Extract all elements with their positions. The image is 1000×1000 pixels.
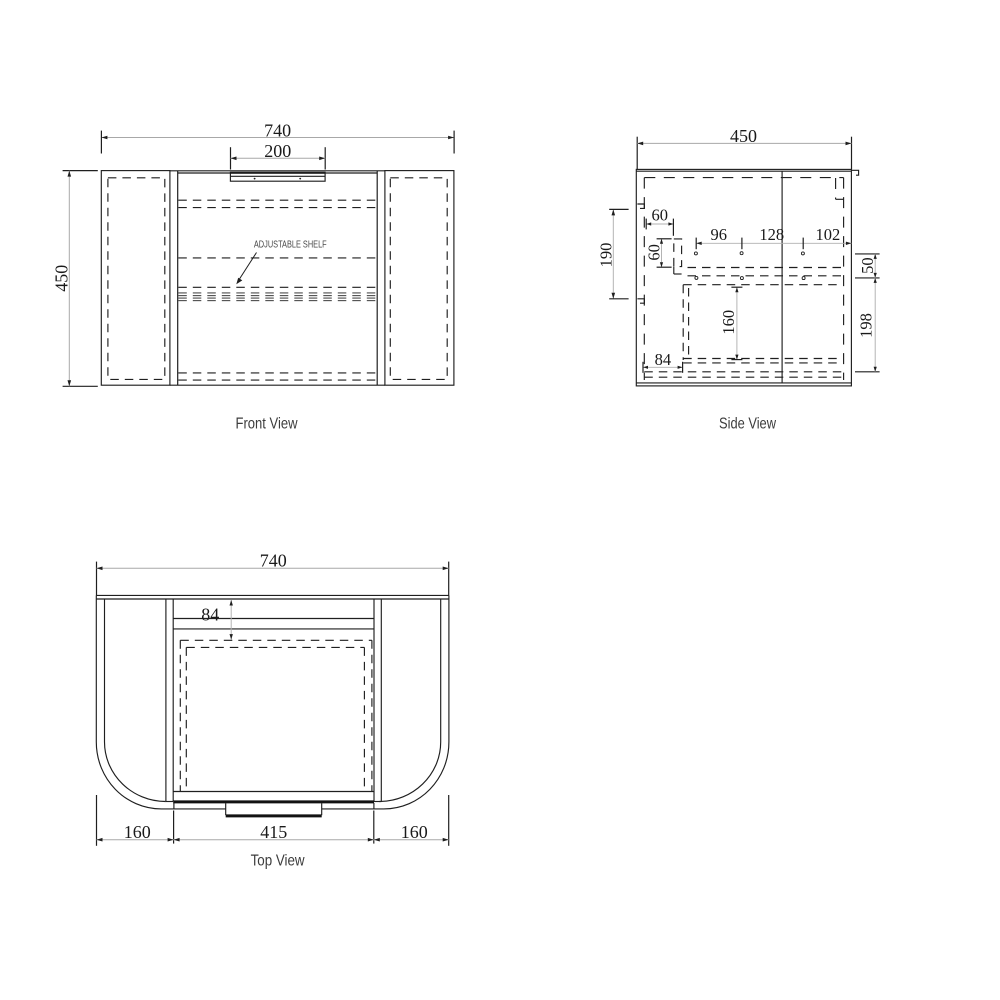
svg-text:450: 450: [730, 126, 757, 146]
svg-text:ADJUSTABLE SHELF: ADJUSTABLE SHELF: [254, 240, 327, 251]
svg-text:415: 415: [260, 822, 287, 842]
svg-text:740: 740: [264, 121, 291, 141]
svg-text:128: 128: [759, 225, 784, 244]
svg-text:Side View: Side View: [719, 415, 776, 432]
svg-text:Front View: Front View: [236, 415, 298, 432]
svg-text:96: 96: [711, 225, 728, 244]
svg-text:84: 84: [655, 350, 672, 369]
svg-text:Top View: Top View: [251, 852, 305, 869]
svg-text:200: 200: [264, 141, 291, 161]
svg-text:60: 60: [652, 205, 669, 224]
svg-text:450: 450: [52, 265, 72, 292]
svg-text:740: 740: [260, 550, 287, 570]
svg-text:160: 160: [719, 310, 738, 335]
svg-text:160: 160: [124, 822, 151, 842]
svg-text:102: 102: [816, 225, 841, 244]
svg-text:160: 160: [401, 822, 428, 842]
svg-text:60: 60: [645, 244, 664, 261]
svg-text:190: 190: [596, 243, 615, 268]
svg-text:84: 84: [201, 604, 219, 624]
svg-text:50: 50: [858, 257, 877, 274]
svg-text:198: 198: [856, 313, 875, 338]
